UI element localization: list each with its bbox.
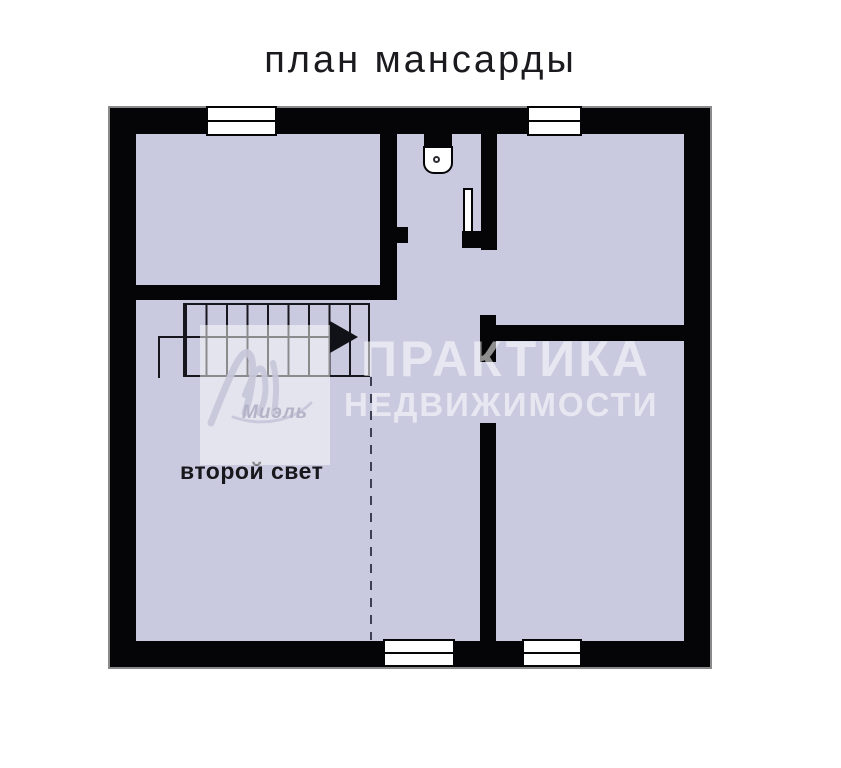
- sink-drain-icon: [433, 156, 440, 163]
- window-glazing-line: [528, 120, 581, 122]
- wall-topleft-room-bottom: [136, 285, 396, 300]
- door-leaf: [463, 188, 473, 233]
- stair-rail-hook: [158, 337, 160, 378]
- wall-hall-right: [481, 134, 497, 250]
- window-glazing-line: [207, 120, 276, 122]
- window-top-right: [527, 106, 582, 136]
- window-glazing-line: [384, 652, 454, 654]
- wall-hall-door-jamb-right: [462, 231, 481, 248]
- watermark-text-line1: ПРАКТИКА: [361, 334, 651, 384]
- window-top-left: [206, 106, 277, 136]
- wall-bottom-rooms-divider: [480, 423, 496, 641]
- floor-plan-page: план мансарды второй свет Миэль ПРАКТИКА…: [0, 0, 841, 768]
- watermark-text-line2: НЕДВИЖИМОСТИ: [344, 388, 659, 421]
- wall-hall-door-jamb-left: [396, 227, 408, 243]
- window-bottom-left: [383, 639, 455, 667]
- stair-direction-arrow-icon: [330, 321, 358, 353]
- window-bottom-right: [522, 639, 582, 667]
- window-glazing-line: [523, 652, 581, 654]
- sink-tank: [424, 134, 452, 146]
- wall-topleft-room-right: [380, 134, 397, 300]
- miel-logo-text: Миэль: [242, 402, 308, 424]
- page-title: план мансарды: [0, 40, 841, 82]
